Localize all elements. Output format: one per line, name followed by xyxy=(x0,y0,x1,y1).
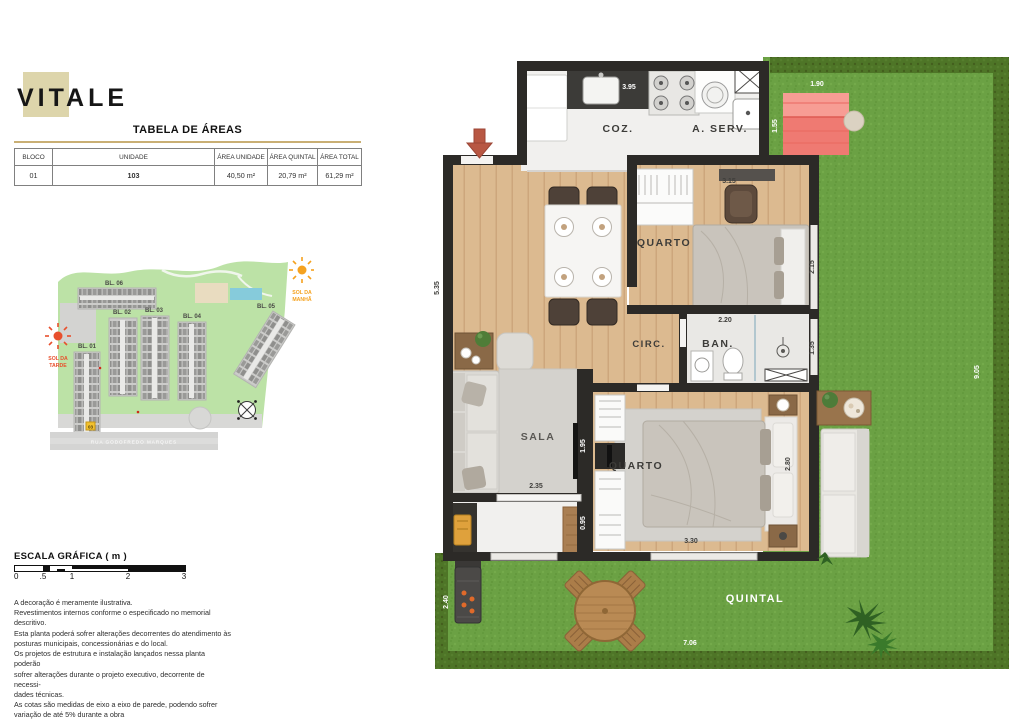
kitchen-counter-sink xyxy=(567,71,649,109)
bedroom2-wardrobe xyxy=(595,395,625,549)
sun-morning-icon xyxy=(289,257,314,283)
dim-3-30: 3.30 xyxy=(684,538,698,545)
label-bl05: BL. 05 xyxy=(257,304,276,310)
site-map: BL. 06 BL. 02 BL. 03 BL. 04 BL. xyxy=(42,248,314,472)
dim-1-55: 1.55 xyxy=(772,119,779,133)
dim-5-35: 5.35 xyxy=(434,281,441,295)
scale-bar xyxy=(14,565,186,572)
dim-0-95: 0.95 xyxy=(580,516,587,530)
col-area-quintal: ÁREA QUINTAL xyxy=(268,149,318,166)
block-bl01: BL. 01 03 xyxy=(74,344,100,436)
disclaimer-line: Esta planta poderá sofrer alterações dec… xyxy=(14,629,232,639)
disclaimer-line: A decoração é meramente ilustrativa. xyxy=(14,598,232,608)
hedge-bottom xyxy=(435,651,1009,669)
cell-area-total: 61,29 m² xyxy=(318,166,362,186)
clubhouse xyxy=(195,283,228,303)
bath-window xyxy=(765,369,807,381)
tick-1: 1 xyxy=(70,572,74,581)
toilet xyxy=(723,348,743,380)
logo-vitale: VITALE xyxy=(17,84,128,113)
outdoor-bench xyxy=(821,429,869,557)
sun-morning-label-2: MANHÃ xyxy=(292,296,312,303)
cell-bloco: 01 xyxy=(15,166,53,186)
disclaimer-line: sofrer alterações durante o projeto exec… xyxy=(14,670,232,690)
room-label-sala: SALA xyxy=(521,431,556,443)
label-bl06: BL. 06 xyxy=(105,281,124,287)
bed-single xyxy=(693,225,809,309)
disclaimer-line: dades técnicas. xyxy=(14,690,232,700)
tick-2: 2 xyxy=(126,572,130,581)
areas-table-title: TABELA DE ÁREAS xyxy=(14,124,361,136)
bedroom2-door-opening xyxy=(637,385,669,392)
room-label-ban: BAN. xyxy=(702,338,734,350)
block-bl02: BL. 02 xyxy=(109,310,137,396)
room-label-circ: CIRC. xyxy=(632,339,665,350)
floorplan-sheet: VITALE TABELA DE ÁREAS BLOCO UNIDADE ÁRE… xyxy=(0,0,1024,723)
dim-2-40: 2.40 xyxy=(443,595,450,609)
room-label-coz: COZ. xyxy=(602,123,633,135)
dim-3-15: 3.15 xyxy=(722,178,736,185)
col-bloco: BLOCO xyxy=(15,149,53,166)
col-area-total: ÁREA TOTAL xyxy=(318,149,362,166)
disclaimer-line: posturas municipais, concessionárias e d… xyxy=(14,639,232,649)
cell-unidade: 103 xyxy=(53,166,215,186)
cell-area-unidade: 40,50 m² xyxy=(215,166,268,186)
dim-1-90: 1.90 xyxy=(810,81,824,88)
highlighted-unit-number: 03 xyxy=(88,425,94,430)
block-bl04: BL. 04 xyxy=(178,314,206,400)
disclaimer-line: As cotas são medidas de eixo a eixo de p… xyxy=(14,700,232,710)
bath-vanity xyxy=(691,351,713,381)
disclaimer-text: A decoração é meramente ilustrativa. Rev… xyxy=(14,598,232,721)
dim-1-35: 1.35 xyxy=(809,341,816,355)
hedge-top xyxy=(770,57,1009,73)
map-marker-dot xyxy=(99,367,102,370)
table-header-row: BLOCO UNIDADE ÁREA UNIDADE ÁREA QUINTAL … xyxy=(15,149,362,166)
dim-2-15: 2.15 xyxy=(809,260,816,274)
dim-2-35: 2.35 xyxy=(529,483,543,490)
patio-glass-door xyxy=(497,495,581,502)
garden-shed xyxy=(783,93,849,155)
dim-3-95: 3.95 xyxy=(622,84,636,91)
bedroom1-chair xyxy=(725,185,757,223)
street-bar: RUA GODOFREDO MARQUES xyxy=(50,432,218,450)
patio-window xyxy=(491,553,557,560)
areas-table: TABELA DE ÁREAS BLOCO UNIDADE ÁREA UNIDA… xyxy=(14,124,361,186)
areas-table-rule xyxy=(14,141,361,143)
room-label-aserv: A. SERV. xyxy=(692,123,748,135)
street-name: RUA GODOFREDO MARQUES xyxy=(91,440,177,445)
dim-2-80: 2.80 xyxy=(785,457,792,471)
col-area-unidade: ÁREA UNIDADE xyxy=(215,149,268,166)
garden-stone xyxy=(844,111,864,131)
graphic-scale: ESCALA GRÁFICA ( m ) 0 .5 1 2 3 xyxy=(14,551,194,582)
block-bl03: BL. 03 xyxy=(141,308,169,400)
sala-tv xyxy=(573,423,578,479)
outdoor-side-table xyxy=(817,391,871,425)
pool xyxy=(230,288,262,300)
nightstand-top xyxy=(769,395,797,415)
dim-9-05: 9.05 xyxy=(974,365,981,379)
col-unidade: UNIDADE xyxy=(53,149,215,166)
dim-1-95: 1.95 xyxy=(580,439,587,453)
patio-cabinet xyxy=(449,503,477,557)
laundry-washer xyxy=(695,69,735,113)
bath-door-opening xyxy=(680,319,686,347)
cell-area-quintal: 20,79 m² xyxy=(268,166,318,186)
sun-afternoon-label-1: SOL DA xyxy=(48,356,68,362)
bed-double xyxy=(643,417,797,531)
sofa xyxy=(447,371,499,493)
tick-0: 0 xyxy=(14,572,18,581)
garden-table xyxy=(575,581,635,641)
disclaimer-line: variação de até 5% durante a obra xyxy=(14,710,232,720)
kitchen-fridge xyxy=(525,75,567,141)
label-bl01: BL. 01 xyxy=(78,344,97,350)
bedroom1-wardrobe xyxy=(633,169,693,225)
dim-2-20: 2.20 xyxy=(718,317,732,324)
bbq-grill xyxy=(455,561,481,623)
room-label-quintal: QUINTAL xyxy=(726,593,785,605)
disclaimer-line: Os projetos de estrutura e instalação la… xyxy=(14,649,232,669)
label-bl04: BL. 04 xyxy=(183,314,202,320)
kitchen-stove xyxy=(649,71,699,115)
nightstand-bottom xyxy=(769,525,797,547)
entry-arrow-icon xyxy=(467,129,492,158)
tick-3: 3 xyxy=(182,572,186,581)
tick-05: .5 xyxy=(40,572,47,581)
scale-ticks: 0 .5 1 2 3 xyxy=(14,572,186,582)
room-label-quarto1: QUARTO xyxy=(637,237,691,249)
map-marker-dot xyxy=(137,411,140,414)
entry-door-opening xyxy=(461,156,493,164)
pouf xyxy=(497,333,533,371)
cul-de-sac xyxy=(189,407,211,429)
sun-afternoon-label-2: TARDE xyxy=(49,363,67,369)
scale-title: ESCALA GRÁFICA ( m ) xyxy=(14,551,194,562)
bedroom2-window xyxy=(651,553,757,560)
label-bl02: BL. 02 xyxy=(113,310,132,316)
dim-7-06: 7.06 xyxy=(683,640,697,647)
hedge-left xyxy=(435,553,448,669)
disclaimer-line: Revestimentos internos conforme o especi… xyxy=(14,608,232,628)
table-row: 01 103 40,50 m² 20,79 m² 61,29 m² xyxy=(15,166,362,186)
sun-morning-label-1: SOL DA xyxy=(292,290,312,296)
floorplan: COZ. A. SERV. QUARTO CIRC. BAN. SALA QUA… xyxy=(433,55,1013,695)
dining-table xyxy=(545,205,621,297)
hedge-right xyxy=(993,57,1009,669)
coffee-table xyxy=(455,331,493,369)
areas-table-grid: BLOCO UNIDADE ÁREA UNIDADE ÁREA QUINTAL … xyxy=(14,148,362,186)
label-bl03: BL. 03 xyxy=(145,308,164,314)
compass-icon xyxy=(237,400,257,420)
room-label-quarto2: QUARTO xyxy=(609,460,663,472)
